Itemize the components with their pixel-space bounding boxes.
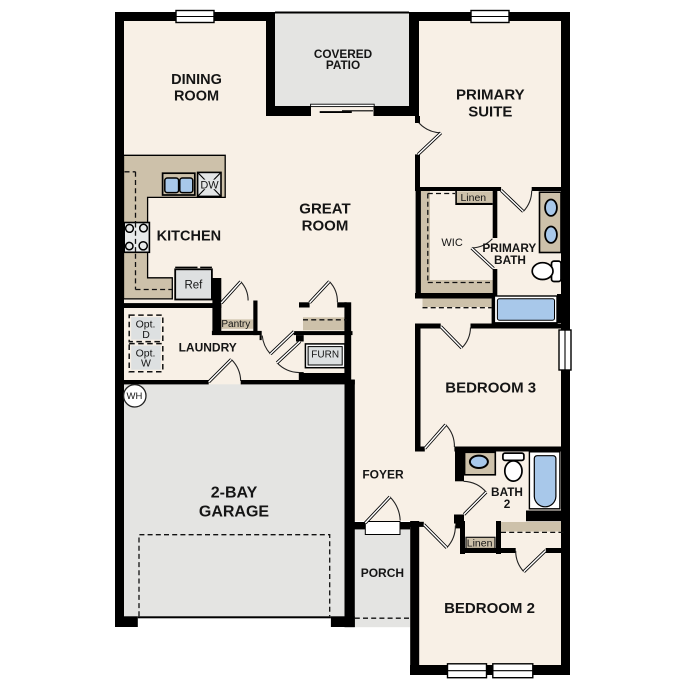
svg-text:LAUNDRY: LAUNDRY [179, 340, 237, 354]
svg-text:Pantry: Pantry [221, 319, 250, 330]
svg-text:BEDROOM 2: BEDROOM 2 [444, 600, 535, 617]
svg-text:DINING: DINING [171, 72, 222, 88]
svg-text:GREAT: GREAT [299, 200, 350, 217]
svg-text:BEDROOM 3: BEDROOM 3 [445, 379, 536, 396]
svg-text:ROOM: ROOM [302, 217, 349, 234]
svg-text:PORCH: PORCH [361, 566, 404, 580]
svg-text:Ref: Ref [184, 279, 203, 291]
svg-text:FURN: FURN [311, 349, 339, 360]
svg-text:Linen: Linen [467, 538, 493, 550]
svg-text:Linen: Linen [460, 192, 486, 204]
svg-text:2-BAY: 2-BAY [211, 485, 258, 502]
svg-text:W: W [141, 358, 151, 370]
svg-text:ROOM: ROOM [174, 88, 219, 104]
svg-text:BATH: BATH [494, 253, 526, 267]
svg-text:FOYER: FOYER [362, 468, 404, 482]
svg-text:2: 2 [504, 497, 511, 511]
svg-text:DW: DW [200, 179, 219, 191]
svg-text:KITCHEN: KITCHEN [157, 229, 221, 245]
svg-text:WH: WH [126, 391, 142, 402]
svg-text:WIC: WIC [441, 237, 462, 249]
svg-text:SUITE: SUITE [468, 104, 512, 121]
svg-text:PATIO: PATIO [326, 58, 360, 72]
svg-text:PRIMARY: PRIMARY [456, 86, 525, 103]
svg-text:D: D [142, 329, 150, 341]
svg-text:GARAGE: GARAGE [199, 504, 270, 521]
